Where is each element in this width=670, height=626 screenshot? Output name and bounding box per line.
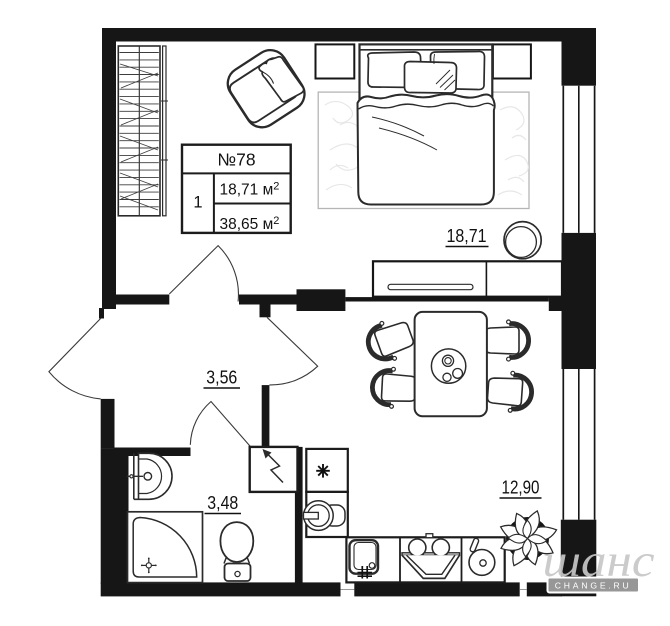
svg-text:18,71: 18,71 bbox=[447, 226, 487, 246]
svg-text:3,56: 3,56 bbox=[206, 368, 237, 388]
svg-text:1: 1 bbox=[193, 194, 202, 212]
svg-text:CHANGE.RU: CHANGE.RU bbox=[555, 580, 632, 590]
svg-text:№78: №78 bbox=[217, 150, 255, 170]
svg-text:12,90: 12,90 bbox=[502, 478, 540, 498]
svg-text:3,48: 3,48 bbox=[207, 493, 238, 513]
svg-text:18,71 м2: 18,71 м2 bbox=[220, 180, 280, 198]
svg-text:38,65 м2: 38,65 м2 bbox=[220, 215, 280, 233]
